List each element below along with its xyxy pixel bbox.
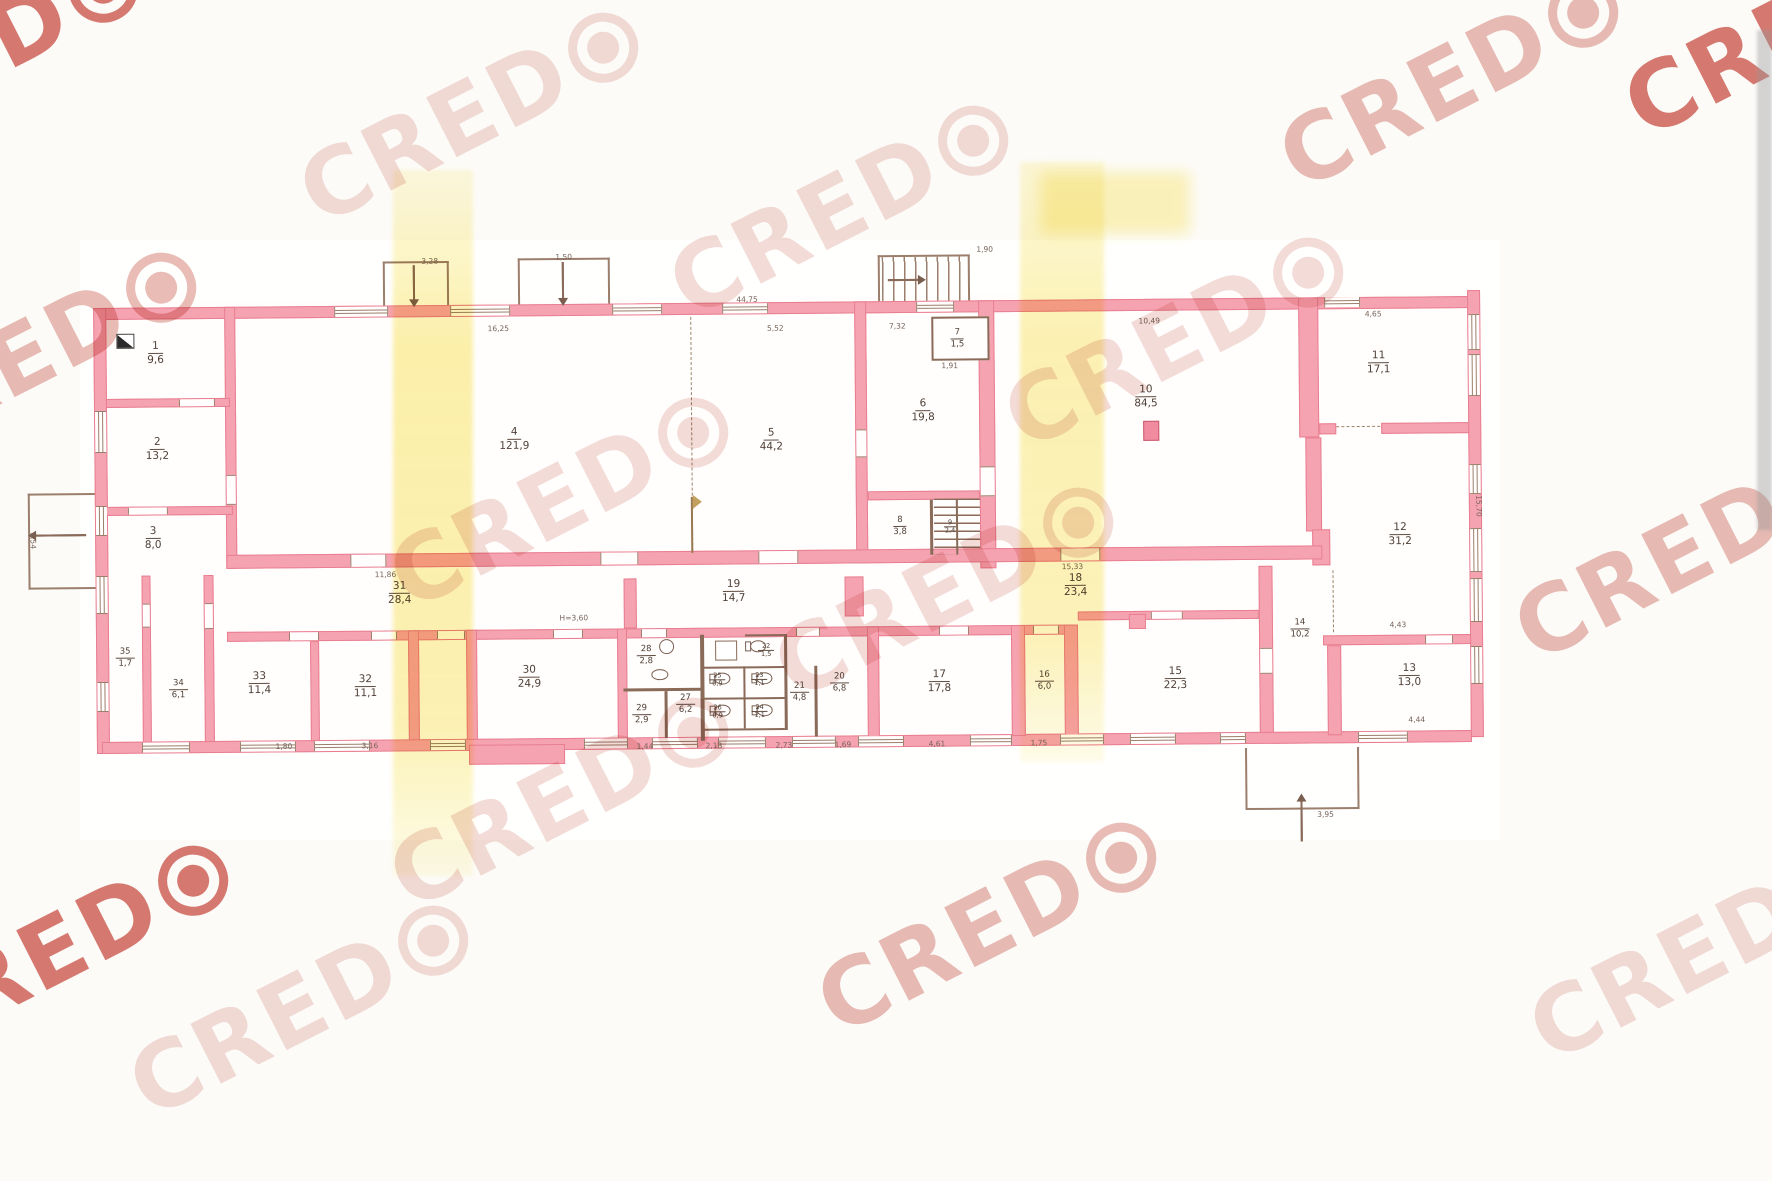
room-area: 1,5 [761,650,771,658]
door-gap [289,632,319,640]
room-label-1: 19,6 [147,340,164,367]
room-number: 7 [951,327,965,339]
wall [1381,422,1469,434]
room-number: 15 [1165,665,1186,679]
room-number: 21 [790,681,809,693]
wall [141,576,151,743]
dimension-label: 3,54 [29,532,38,549]
dimension-label: 1,44 [637,742,654,751]
room-number: 11 [1368,349,1389,363]
window-gap [1358,732,1408,742]
wall [310,641,320,741]
room-label-15: 1522,3 [1164,665,1188,692]
window-gap [1220,733,1246,743]
room-label-20: 206,8 [830,671,849,693]
room-area: 31,2 [1388,535,1411,547]
room-label-26: 260,9 [709,704,725,719]
room-number: 20 [830,671,849,683]
door-gap [350,555,386,567]
corner-marker-icon [116,334,134,349]
room-area: 17,8 [928,682,951,694]
room-area: 14,7 [722,592,745,604]
window-gap [1471,646,1482,684]
room-number: 34 [169,678,188,690]
room-label-33: 3311,4 [248,670,272,697]
scan-edge-shadow [1757,30,1772,530]
room-label-28: 282,8 [637,644,656,666]
dimension-label: 2,73 [776,740,793,749]
room-number: 30 [519,664,540,678]
room-area: 9,6 [147,354,164,366]
room-label-2: 213,2 [146,436,170,463]
room-label-7: 71,5 [951,327,965,349]
room-number: 1 [148,340,163,354]
window-gap [1468,314,1479,350]
column [1143,421,1159,441]
room-label-6: 619,8 [911,397,935,424]
room-label-24: 241,1 [751,704,767,719]
dimension-label: 10,49 [1138,316,1160,325]
room-number: 33 [249,670,270,684]
dimension-label: 3,16 [362,741,379,750]
dimension-label: 16,25 [488,324,510,333]
window-gap [612,304,662,314]
sink-icon [659,639,674,654]
room-area: 1,1 [754,711,764,719]
wall [1327,645,1342,735]
room-number: 28 [637,644,656,656]
room-area: 0,9 [712,711,722,719]
yellow-highlight-band-left [393,170,473,876]
room-area: 10,2 [1291,629,1310,639]
door-gap [600,552,638,564]
dimension-label: 15,70 [1474,495,1483,517]
dimension-label: 2,13 [706,741,723,750]
dimension-label: 1,69 [835,740,852,749]
room-label-34: 346,1 [169,678,188,700]
room-number: 8 [893,515,907,527]
dimension-label: 5,52 [767,324,784,333]
room-number: 13 [1399,662,1420,676]
room-area: 17,1 [1367,363,1390,375]
dimension-label: 1,80 [276,742,293,751]
floor-plan-drawing: 19,6213,238,04121,9544,2619,871,583,892,… [0,0,1772,1181]
door-gap [553,630,583,638]
room-number: 12 [1389,521,1410,535]
room-area: 19,8 [911,411,934,423]
door-gap [856,429,866,457]
dimension-label: H=3,60 [559,613,588,622]
yellow-highlight-blob [1040,172,1190,234]
room-label-5: 544,2 [759,426,783,453]
room-area: 1,7 [118,658,132,668]
window-gap [718,737,766,747]
wall [224,307,237,569]
room-number: 29 [632,703,651,715]
room-area: 13,2 [146,450,169,462]
interior-stair-steps-icon [934,498,980,554]
room-label-29: 292,9 [632,703,651,725]
door-gap [179,399,215,406]
door-gap [1151,612,1183,619]
room-number: 10 [1135,383,1156,397]
room-area: 11,4 [248,684,271,696]
wall [624,578,637,628]
dimension-label: 7,32 [889,321,906,330]
window-gap [96,506,107,536]
room-number: 19 [723,578,744,592]
room-label-10: 1084,5 [1134,383,1158,410]
room-area: 22,3 [1164,679,1187,691]
survey-flag-icon [693,495,702,509]
door-gap [128,507,168,514]
window-gap [584,738,628,748]
room-area: 1,5 [951,339,965,349]
room-label-22: 221,5 [758,643,774,658]
room-number: 32 [355,673,376,687]
thin-wall [930,500,933,555]
window-gap [1324,297,1360,307]
floor-plan-scan: CREDCREDCREDCREDCREDCREDCREDCREDCREDCRED… [0,0,1772,1181]
room-label-14: 1410,2 [1290,617,1309,639]
room-area: 6,8 [833,683,847,693]
room-number: 27 [676,693,695,705]
room-area: 11,1 [354,687,377,699]
room-number: 35 [116,647,135,659]
wall [1319,423,1336,434]
vent-shaft [715,640,737,660]
wall [1298,297,1319,437]
room-area: 2,4 [945,526,955,534]
room-number: 6 [916,397,931,411]
room-area: 6,1 [172,690,186,700]
dimension-label: 4,44 [1408,715,1425,724]
room-label-13: 1313,0 [1398,662,1422,689]
door-gap [796,628,820,636]
room-label-4: 4121,9 [499,426,529,454]
room-area: 13,0 [1398,676,1421,688]
dimension-label: 4,61 [929,739,946,748]
window-gap [142,742,190,752]
window-gap [1469,354,1480,396]
room-label-9: 92,4 [944,519,956,534]
door-gap [981,466,995,496]
room-number: 17 [929,668,950,682]
room-label-12: 1231,2 [1388,521,1412,548]
wall [1305,437,1322,531]
room-number: 5 [764,426,779,440]
door-gap [227,475,236,505]
window-gap [1470,528,1481,572]
room-area: 1,1 [754,679,764,687]
window-gap [858,736,904,746]
room-label-19: 1914,7 [722,578,746,605]
room-area: 2,9 [635,715,649,725]
window-gap [334,306,388,316]
room-area: 44,2 [760,441,783,453]
dimension-label: 4,43 [1390,620,1407,629]
wall [617,628,628,738]
door-gap [1425,635,1453,643]
door-gap [939,626,969,634]
dimension-label: 3,95 [1317,810,1334,819]
room-area: 24,9 [518,678,541,690]
room-label-25: 250,9 [709,672,725,687]
window-gap [95,411,106,453]
room-label-23: 231,1 [751,672,767,687]
window-gap [722,303,768,313]
room-number: 4 [507,426,522,440]
door-gap [1260,648,1272,674]
window-gap [916,302,954,312]
window-gap [97,682,108,712]
window-gap [970,735,1012,745]
window-gap [1130,734,1176,744]
dimension-label: 1,90 [976,245,993,254]
thin-wall [745,634,787,636]
room-label-3: 38,0 [145,525,162,552]
door-gap [758,551,798,563]
wall [203,575,214,742]
room-label-17: 1717,8 [928,668,952,695]
room-label-27: 276,2 [676,693,695,715]
dimension-label: 4,65 [1365,309,1382,318]
side-porch [28,493,97,590]
room-area: 84,5 [1134,397,1157,409]
yellow-highlight-band-right [1020,162,1104,762]
thin-wall [814,666,818,737]
door-gap [205,603,213,629]
window-gap [96,576,107,614]
window-gap [792,737,836,747]
room-number: 3 [146,525,161,539]
window-gap [1471,578,1482,622]
room-area: 121,9 [499,440,529,452]
room-area: 4,8 [793,692,807,702]
wall [867,626,880,737]
door-gap [641,629,667,637]
room-label-30: 3024,9 [518,664,542,691]
room-number: 2 [150,436,165,450]
room-label-35: 351,7 [116,647,135,669]
door-gap [143,604,150,628]
wall [1129,614,1146,629]
thin-wall [664,691,667,738]
room-area: 0,9 [712,679,722,687]
room-label-8: 83,8 [893,515,907,537]
wall [844,576,863,616]
room-area: 6,2 [679,704,693,714]
room-label-32: 3211,1 [354,673,378,700]
room-number: 14 [1290,617,1309,629]
dimension-label: 44,75 [736,295,758,304]
wall [469,744,565,765]
window-gap [652,738,698,748]
dimension-label: 1,91 [941,361,958,370]
room-label-11: 1117,1 [1367,349,1391,376]
room-area: 3,8 [893,526,907,536]
room-area: 2,8 [639,656,653,666]
room-label-21: 214,8 [790,681,809,703]
room-area: 8,0 [145,539,162,551]
dimension-label: 1,50 [555,252,572,261]
window-gap [1470,464,1481,494]
